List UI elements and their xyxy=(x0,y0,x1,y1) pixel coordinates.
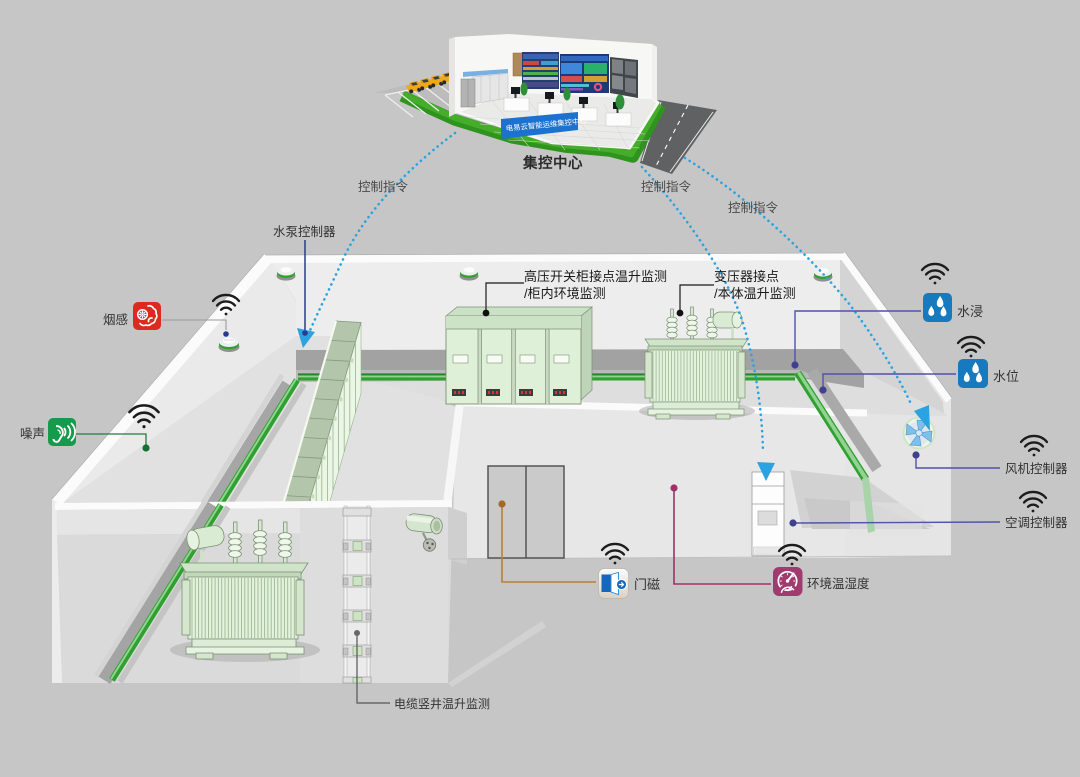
svg-text:空调控制器: 空调控制器 xyxy=(1005,516,1068,530)
svg-text:高压开关柜接点温升监测: 高压开关柜接点温升监测 xyxy=(524,269,667,284)
svg-text:噪声: 噪声 xyxy=(20,427,45,441)
svg-text:电缆竖井温升监测: 电缆竖井温升监测 xyxy=(394,697,490,711)
svg-text:环境温湿度: 环境温湿度 xyxy=(807,576,870,591)
svg-text:门磁: 门磁 xyxy=(634,577,660,592)
svg-text:风机控制器: 风机控制器 xyxy=(1005,462,1068,476)
svg-text:烟感: 烟感 xyxy=(103,312,128,327)
svg-text:水位: 水位 xyxy=(993,369,1019,384)
svg-text:控制指令: 控制指令 xyxy=(358,179,409,194)
svg-text:变压器接点: 变压器接点 xyxy=(714,269,779,284)
svg-text:/本体温升监测: /本体温升监测 xyxy=(714,286,796,301)
svg-text:控制指令: 控制指令 xyxy=(641,179,692,194)
svg-text:水泵控制器: 水泵控制器 xyxy=(273,225,336,239)
svg-text:水浸: 水浸 xyxy=(957,304,983,319)
svg-text:/柜内环境监测: /柜内环境监测 xyxy=(524,286,606,301)
svg-text:控制指令: 控制指令 xyxy=(728,200,779,215)
svg-text:集控中心: 集控中心 xyxy=(522,154,583,172)
